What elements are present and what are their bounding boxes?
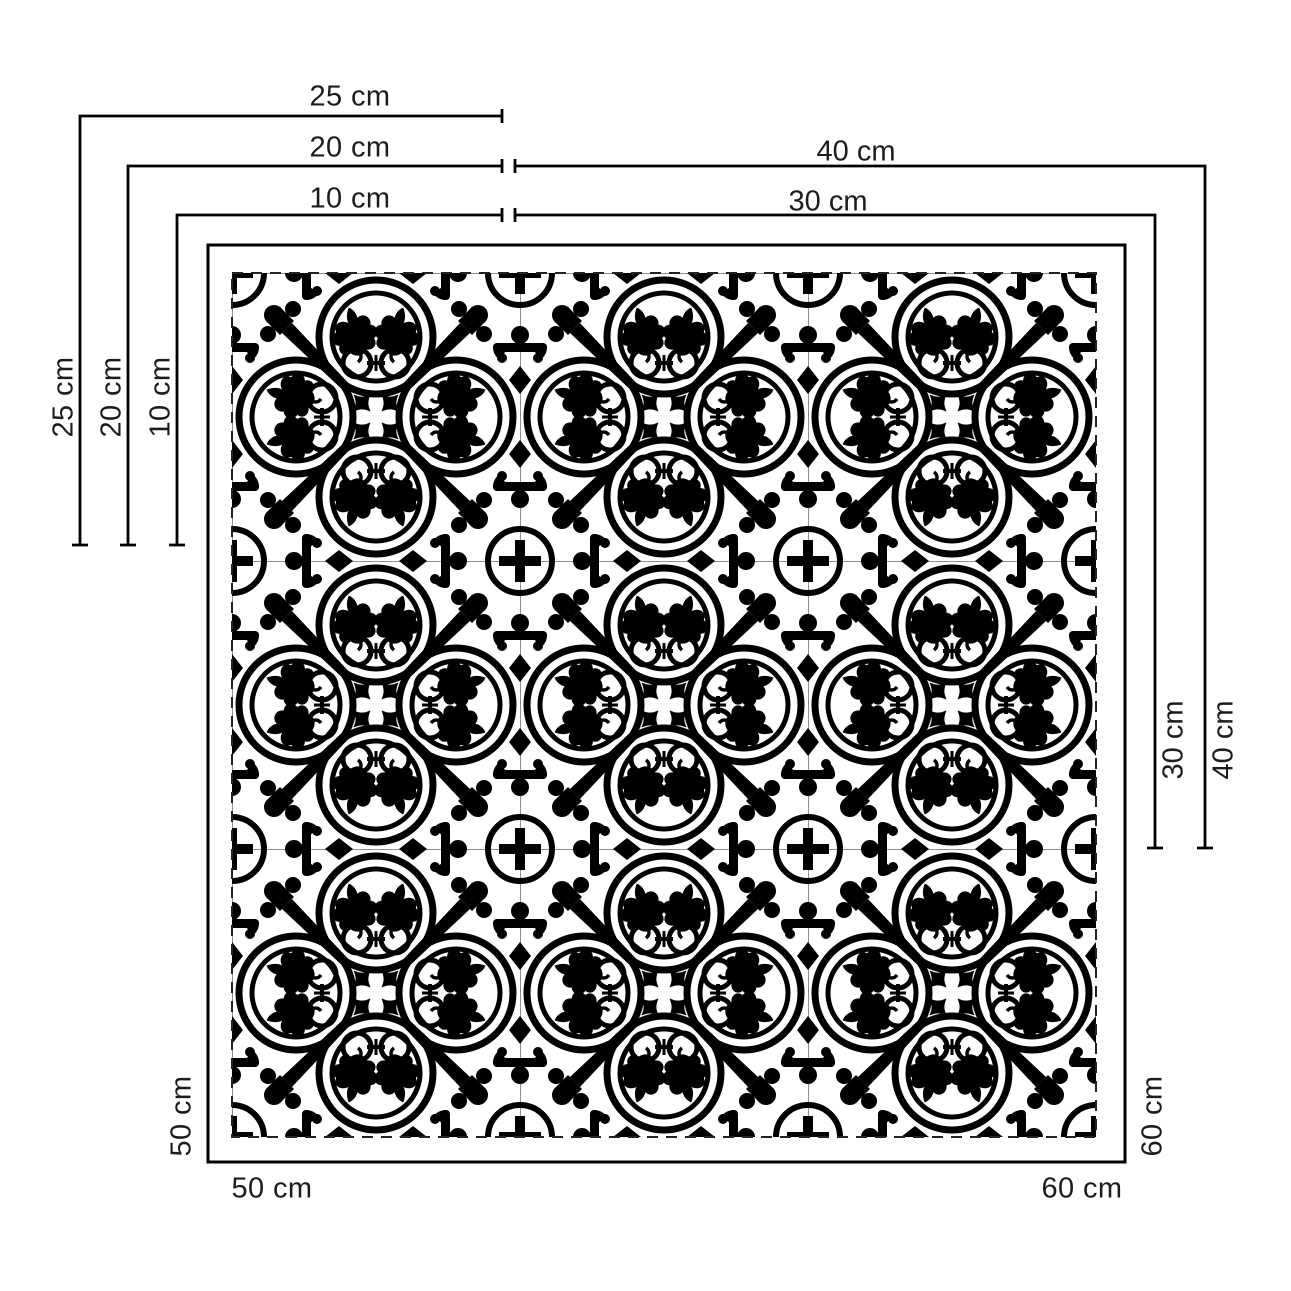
dim-label-bottom-60cm: 60 cm [1042, 1173, 1123, 1206]
dim-label-right-30cm: 30 cm [1158, 701, 1191, 780]
dim-label-side-left-50cm: 50 cm [166, 1076, 199, 1157]
dim-label-left-25cm: 25 cm [48, 357, 81, 438]
dim-label-top-10cm: 10 cm [310, 183, 391, 216]
dim-label-left-10cm: 10 cm [145, 357, 178, 438]
dim-label-top-20cm: 20 cm [310, 132, 391, 165]
dim-label-top-40cm: 40 cm [817, 136, 896, 169]
dim-label-right-40cm: 40 cm [1208, 701, 1241, 780]
tile-pattern-area [232, 273, 1096, 1137]
dim-label-side-right-60cm: 60 cm [1137, 1076, 1170, 1157]
dim-label-bottom-50cm: 50 cm [232, 1173, 313, 1206]
dim-label-left-20cm: 20 cm [96, 357, 129, 438]
dim-label-top-25cm: 25 cm [310, 81, 391, 114]
dim-label-top-30cm: 30 cm [789, 186, 868, 219]
tile-size-diagram: 25 cm 20 cm 10 cm 40 cm 30 cm 25 cm 20 c… [0, 0, 1291, 1291]
